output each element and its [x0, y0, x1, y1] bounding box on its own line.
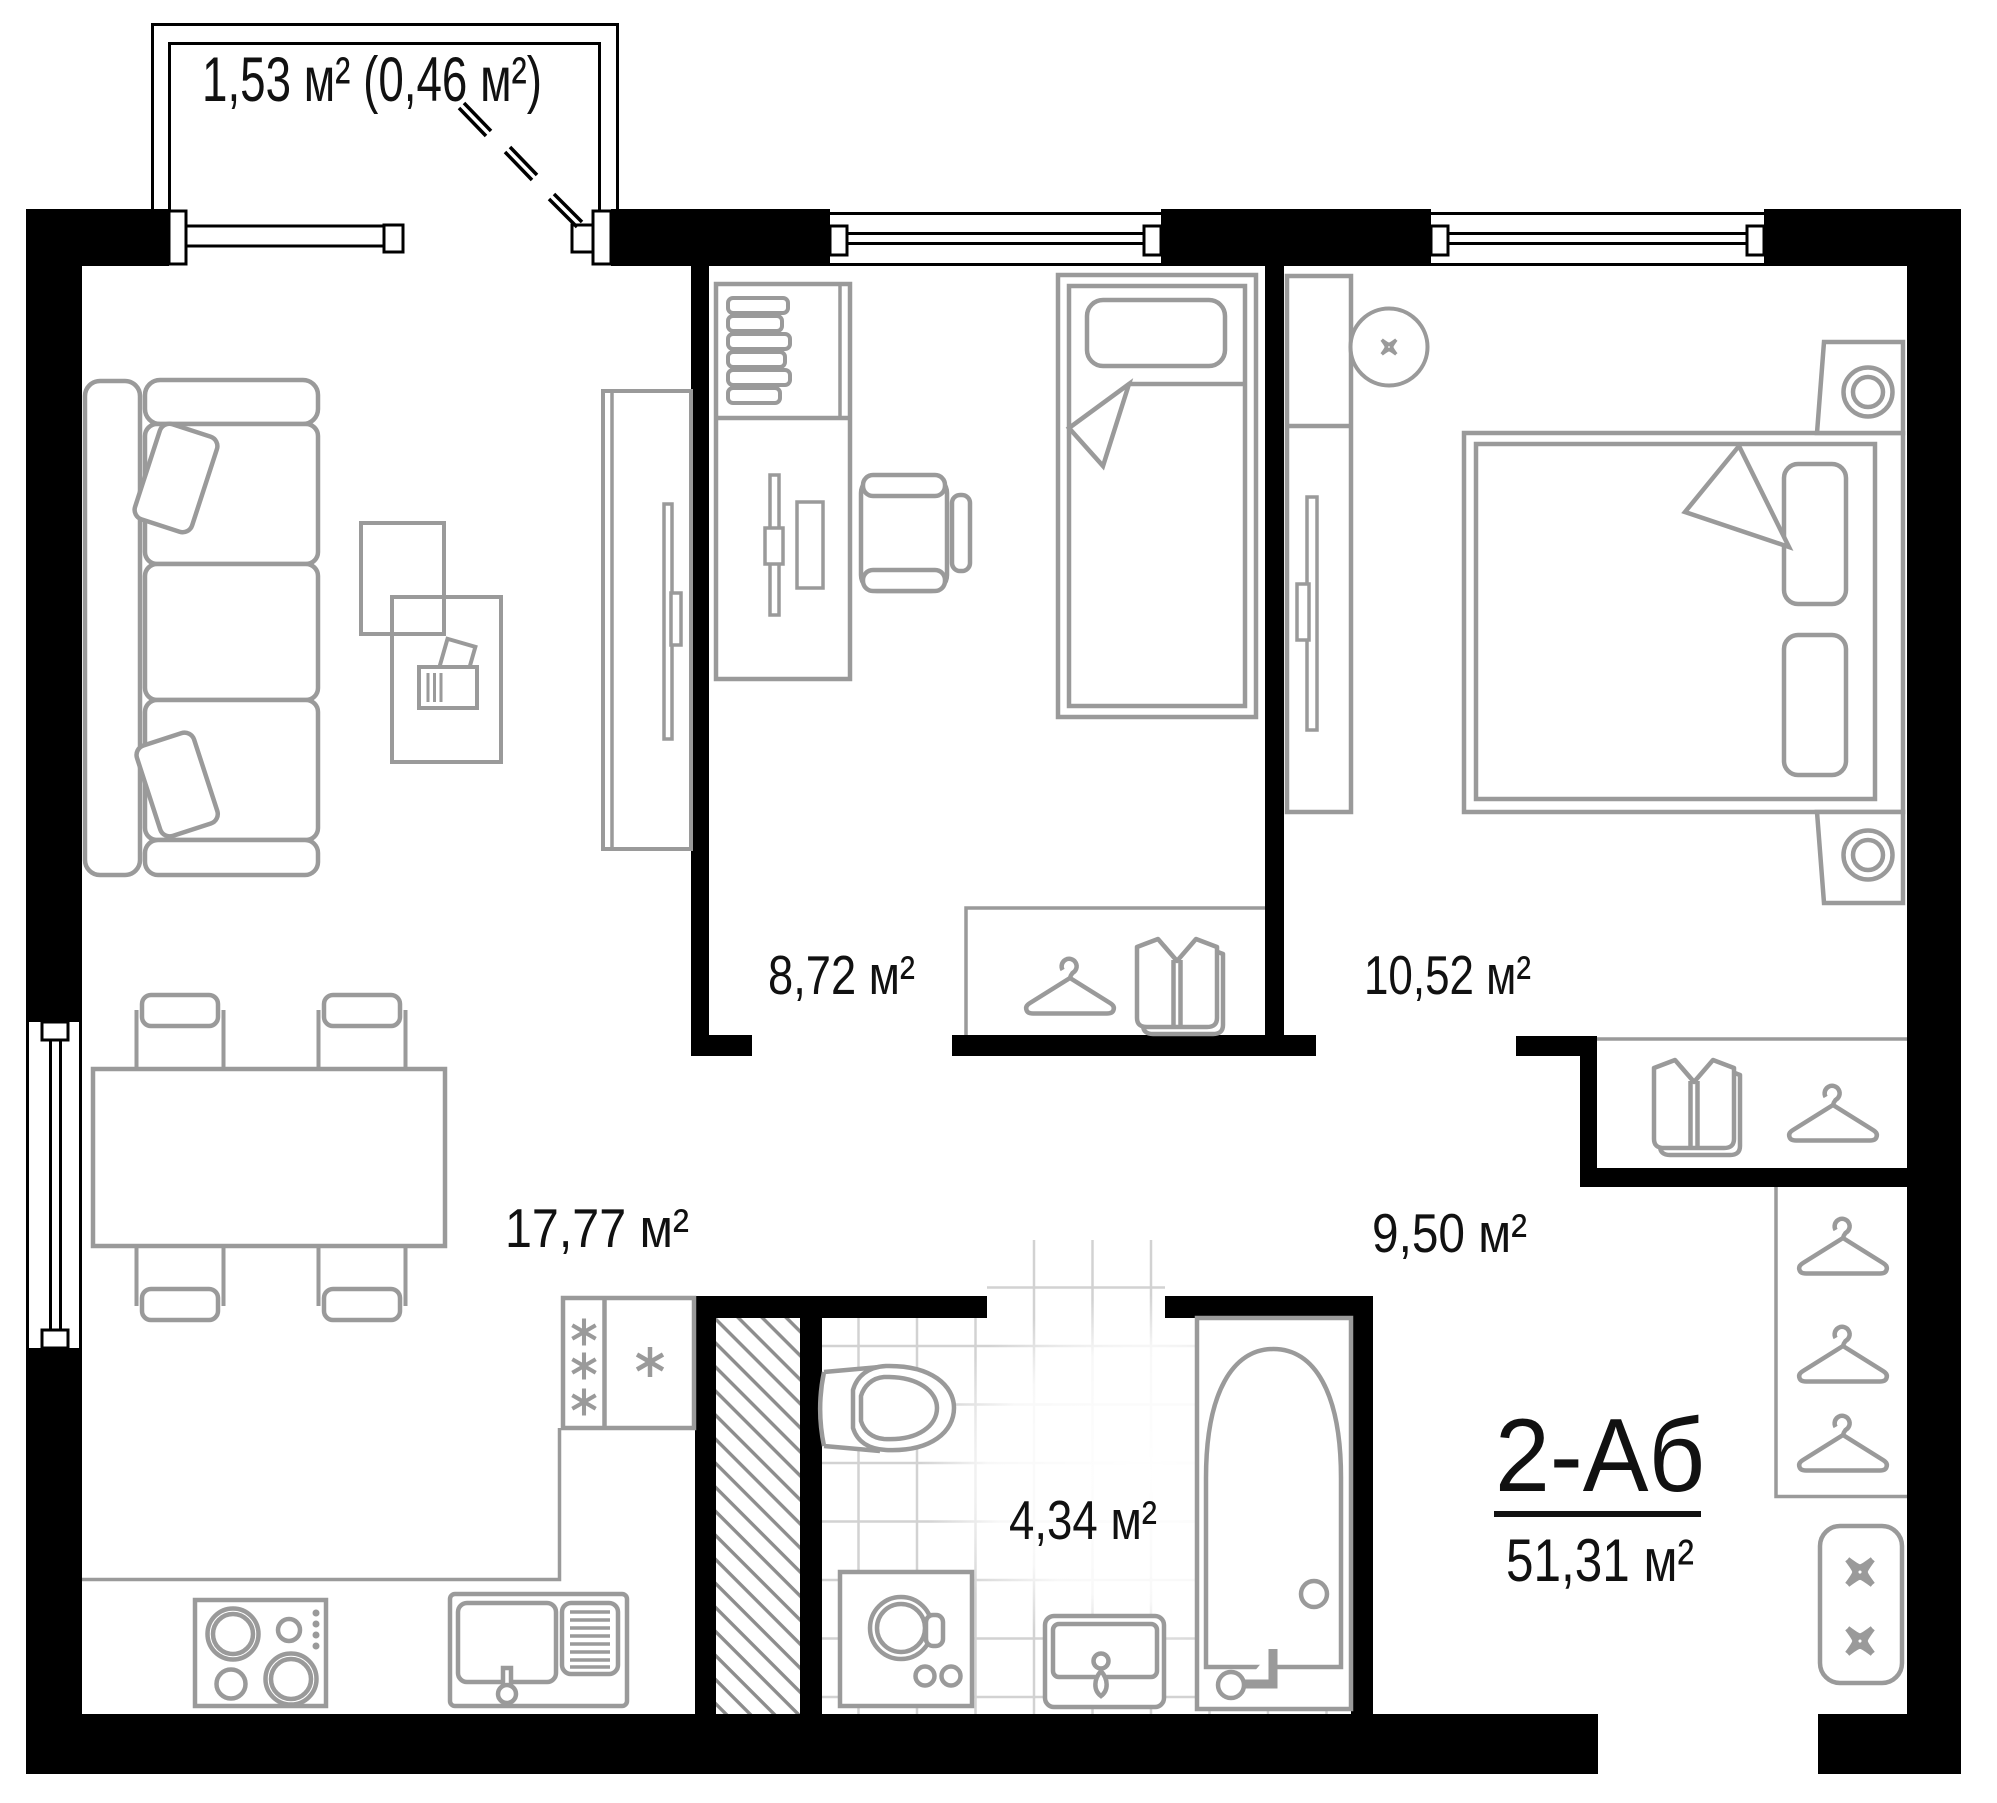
svg-text:2-Аб: 2-Аб	[1495, 1398, 1705, 1514]
svg-text:17,77 м²: 17,77 м²	[505, 1197, 689, 1259]
svg-text:51,31 м²: 51,31 м²	[1506, 1527, 1694, 1594]
svg-text:4,34 м²: 4,34 м²	[1009, 1489, 1157, 1551]
svg-text:1,53 м² (0,46 м²): 1,53 м² (0,46 м²)	[202, 45, 542, 115]
svg-text:10,52 м²: 10,52 м²	[1364, 944, 1531, 1006]
svg-text:9,50 м²: 9,50 м²	[1372, 1202, 1527, 1264]
svg-text:8,72 м²: 8,72 м²	[768, 944, 915, 1006]
